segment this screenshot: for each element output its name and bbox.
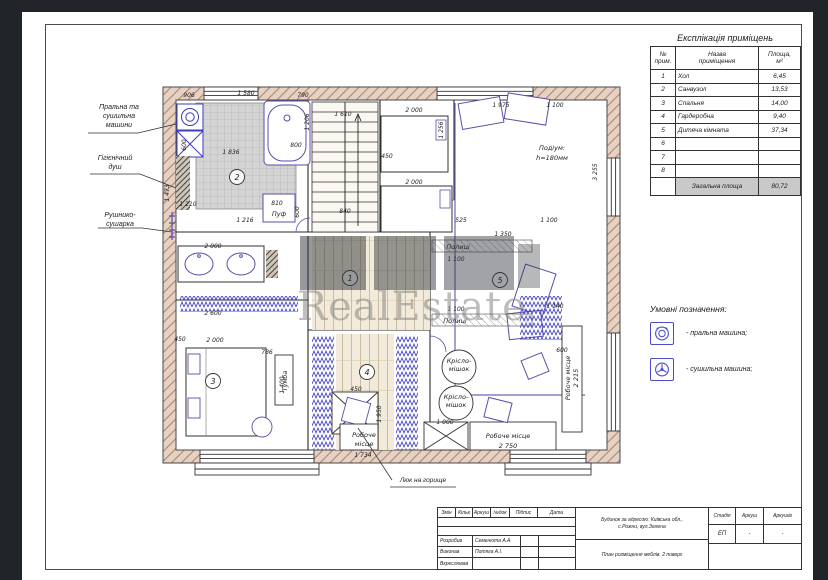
washer-dryer-label: Пральна та сушильна машини bbox=[75, 104, 163, 130]
table-row: 8 bbox=[651, 164, 801, 178]
dimension-label: 1 473 bbox=[164, 184, 171, 201]
annotation-label: Крісло- bbox=[444, 393, 469, 401]
col-header-name: Назва приміщення bbox=[676, 47, 759, 70]
object-address: Будинок за адресою: Київська обл., с.Рож… bbox=[576, 508, 709, 540]
stamp-column-header: Дата bbox=[538, 508, 576, 518]
dimension-label: 906 bbox=[183, 92, 195, 99]
dimension-label: 800 bbox=[290, 142, 302, 149]
stage-header: Стадія bbox=[709, 508, 736, 525]
dimension-label: 1 610 bbox=[334, 111, 351, 118]
annotation-label: Пуф bbox=[272, 210, 287, 218]
clothes-rack-icon bbox=[396, 336, 418, 450]
annotation-label: h=180мм bbox=[536, 154, 568, 162]
stamp-date bbox=[539, 558, 576, 569]
dimension-label: 790 bbox=[297, 92, 309, 99]
dimension-label: 1 000 bbox=[436, 419, 453, 426]
towel-dryer-label: Рушнико- сушарка bbox=[94, 212, 146, 230]
stamp-column-header: Підпис bbox=[510, 508, 538, 518]
washing-machine-icon bbox=[650, 322, 674, 345]
table-row: 6 bbox=[651, 137, 801, 151]
drawing-title: План розміщення меблів. 2 поверх bbox=[576, 540, 709, 569]
stamp-role: Розробив bbox=[438, 536, 473, 547]
annotation-label: мішок bbox=[446, 401, 467, 409]
stamp-name bbox=[473, 558, 521, 569]
legend-item-label: - сушильна машина; bbox=[686, 366, 752, 373]
stamp-role: Виконав bbox=[438, 547, 473, 558]
annotation-label: 2 215 bbox=[572, 369, 580, 388]
dimension-label: 2 000 bbox=[204, 243, 221, 250]
legend-title: Умовні позначення: bbox=[650, 304, 752, 314]
stamp-name: Потяга А.І. bbox=[473, 547, 521, 558]
legend-panel: Умовні позначення: - пральна машина; - с… bbox=[650, 304, 752, 394]
attic-hatch-label: Люк на горище bbox=[388, 477, 458, 485]
dimension-label: 1 100 bbox=[540, 217, 557, 224]
bathroom-fixtures bbox=[169, 101, 310, 282]
screenshot-root: { "watermark": { "text": "RealEstate" },… bbox=[0, 0, 828, 580]
col-header-area: Площа, м² bbox=[759, 47, 801, 70]
dimension-label: 2 000 bbox=[405, 107, 422, 114]
legend-item: - пральна машина; bbox=[650, 322, 752, 345]
sheets-value: - bbox=[764, 525, 801, 544]
dimension-label: 840 bbox=[339, 208, 351, 215]
dimension-label: 450 bbox=[350, 386, 362, 393]
clothes-rack-icon bbox=[312, 336, 334, 450]
dimension-label: 1 140 bbox=[546, 303, 563, 310]
dimension-label: 1 836 bbox=[222, 149, 239, 156]
annotation-label: Робоче bbox=[352, 431, 376, 439]
stamp-name: Семенюта А.А. bbox=[473, 536, 521, 547]
dimension-label: 1 950 bbox=[376, 405, 383, 422]
stamp-signature bbox=[521, 558, 539, 569]
annotation-label: Робоче місце bbox=[486, 432, 531, 440]
explication-title: Експлікація приміщень bbox=[650, 33, 800, 43]
title-block: ЗмінКількАркуш№докПідписДата РозробивСем… bbox=[437, 507, 802, 570]
dimension-label: 1 210 bbox=[179, 201, 196, 208]
chair-icon bbox=[521, 353, 549, 380]
stamp-column-header: Аркуш bbox=[473, 508, 491, 518]
stamp-column-header: №док bbox=[491, 508, 510, 518]
explication-panel: Експлікація приміщень № прим. Назва прим… bbox=[650, 33, 800, 196]
dimension-label: 525 bbox=[455, 217, 467, 224]
annotation-label: Робоче місце bbox=[564, 356, 572, 401]
legend-item-label: - пральна машина; bbox=[686, 330, 747, 337]
annotation-label: Крісло- bbox=[447, 357, 472, 365]
dimension-label: 1 580 bbox=[237, 90, 254, 97]
room-number: 4 bbox=[364, 368, 369, 377]
table-row: 2Санвузол13,53 bbox=[651, 83, 801, 97]
dimension-label: 786 bbox=[261, 349, 273, 356]
legend-item: - сушильна машина; bbox=[650, 358, 752, 381]
dimension-label: 1 206 bbox=[304, 113, 311, 130]
dimension-label: 810 bbox=[271, 200, 283, 207]
side-table-icon bbox=[252, 417, 272, 437]
explication-table: № прим. Назва приміщення Площа, м² 1Хол6… bbox=[650, 46, 801, 196]
dimension-label: 600 bbox=[181, 139, 188, 151]
annotation-label: місце bbox=[355, 440, 374, 448]
stamp-signature bbox=[521, 536, 539, 547]
table-row: 5Дитяча кімната37,34 bbox=[651, 124, 801, 138]
stamp-date bbox=[539, 536, 576, 547]
table-row: 4Гардеробна9,40 bbox=[651, 110, 801, 124]
dimension-label: 1 975 bbox=[492, 102, 509, 109]
stamp-column-header: Кільк bbox=[456, 508, 473, 518]
dimension-label: 2 000 bbox=[405, 179, 422, 186]
annotation-label: Тумба bbox=[281, 371, 289, 392]
annotation-label: мішок bbox=[449, 365, 470, 373]
col-header-number: № прим. bbox=[651, 47, 676, 70]
dimension-label: 600 bbox=[294, 206, 301, 218]
total-label: Загальна площа bbox=[676, 178, 759, 196]
stamp-role: Вкреслював bbox=[438, 558, 473, 569]
vanity-double-sink-icon bbox=[178, 246, 264, 282]
room-number: 2 bbox=[234, 173, 239, 182]
sheets-header: Аркушів bbox=[764, 508, 801, 525]
total-value: 80,72 bbox=[759, 178, 801, 196]
annotation-label: Подіум: bbox=[539, 144, 565, 152]
hygienic-shower-label: Гігієнічний душ bbox=[86, 155, 144, 173]
wardrobe-rack-icon bbox=[180, 296, 298, 312]
duct-shaft bbox=[266, 250, 278, 278]
table-row: 7 bbox=[651, 151, 801, 165]
bathtub-icon bbox=[264, 101, 310, 165]
dimension-label: 1 216 bbox=[236, 217, 253, 224]
table-row: 3Спальня14,00 bbox=[651, 97, 801, 111]
dimension-label: 2 000 bbox=[206, 337, 223, 344]
room-number: 3 bbox=[210, 377, 215, 386]
dimension-label: 1 256 bbox=[438, 121, 445, 138]
total-row: Загальна площа 80,72 bbox=[651, 178, 801, 196]
sheet-header: Аркуш bbox=[736, 508, 764, 525]
dimension-label: 2 600 bbox=[204, 310, 221, 317]
dimension-label: 1 100 bbox=[546, 102, 563, 109]
bedroom-furniture bbox=[180, 296, 298, 437]
dimension-label: 450 bbox=[174, 336, 186, 343]
table-row: 1Хол6,45 bbox=[651, 70, 801, 84]
drying-machine-icon bbox=[650, 358, 674, 381]
sheet-value: - bbox=[736, 525, 764, 544]
chair-icon bbox=[484, 397, 512, 422]
annotation-label: 2 750 bbox=[499, 442, 518, 450]
stamp-column-header: Змін bbox=[438, 508, 456, 518]
dimension-label: 600 bbox=[556, 347, 568, 354]
stage-value: ЕП bbox=[709, 525, 736, 544]
dimension-label: 3 255 bbox=[592, 163, 599, 180]
stamp-date bbox=[539, 547, 576, 558]
dimension-label: 450 bbox=[381, 153, 393, 160]
dimension-label: 1 734 bbox=[354, 452, 371, 459]
stamp-signature bbox=[521, 547, 539, 558]
watermark: RealEstate bbox=[297, 236, 540, 330]
watermark-text: RealEstate bbox=[297, 284, 527, 330]
